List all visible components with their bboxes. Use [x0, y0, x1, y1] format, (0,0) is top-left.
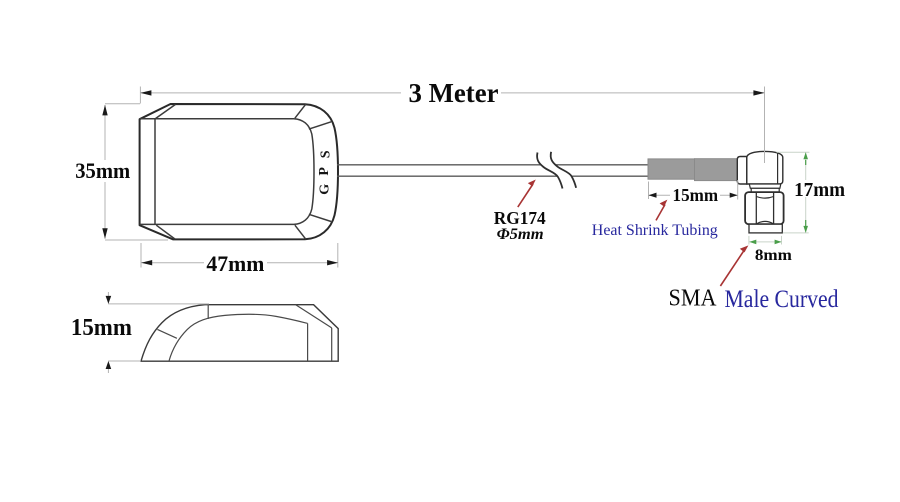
svg-text:17mm: 17mm: [794, 179, 845, 201]
svg-text:S: S: [319, 150, 334, 158]
svg-text:47mm: 47mm: [206, 251, 264, 276]
svg-text:Heat Shrink Tubing: Heat Shrink Tubing: [592, 222, 718, 239]
svg-text:3 Meter: 3 Meter: [409, 78, 499, 108]
svg-text:SMA: SMA: [669, 286, 718, 312]
svg-text:35mm: 35mm: [75, 158, 130, 183]
svg-text:8mm: 8mm: [755, 247, 792, 264]
svg-text:Φ5mm: Φ5mm: [497, 226, 544, 243]
svg-text:15mm: 15mm: [71, 315, 132, 341]
svg-text:P: P: [317, 167, 332, 176]
svg-text:15mm: 15mm: [673, 185, 719, 205]
svg-text:G: G: [318, 184, 333, 195]
svg-text:Male Curved: Male Curved: [725, 286, 839, 313]
